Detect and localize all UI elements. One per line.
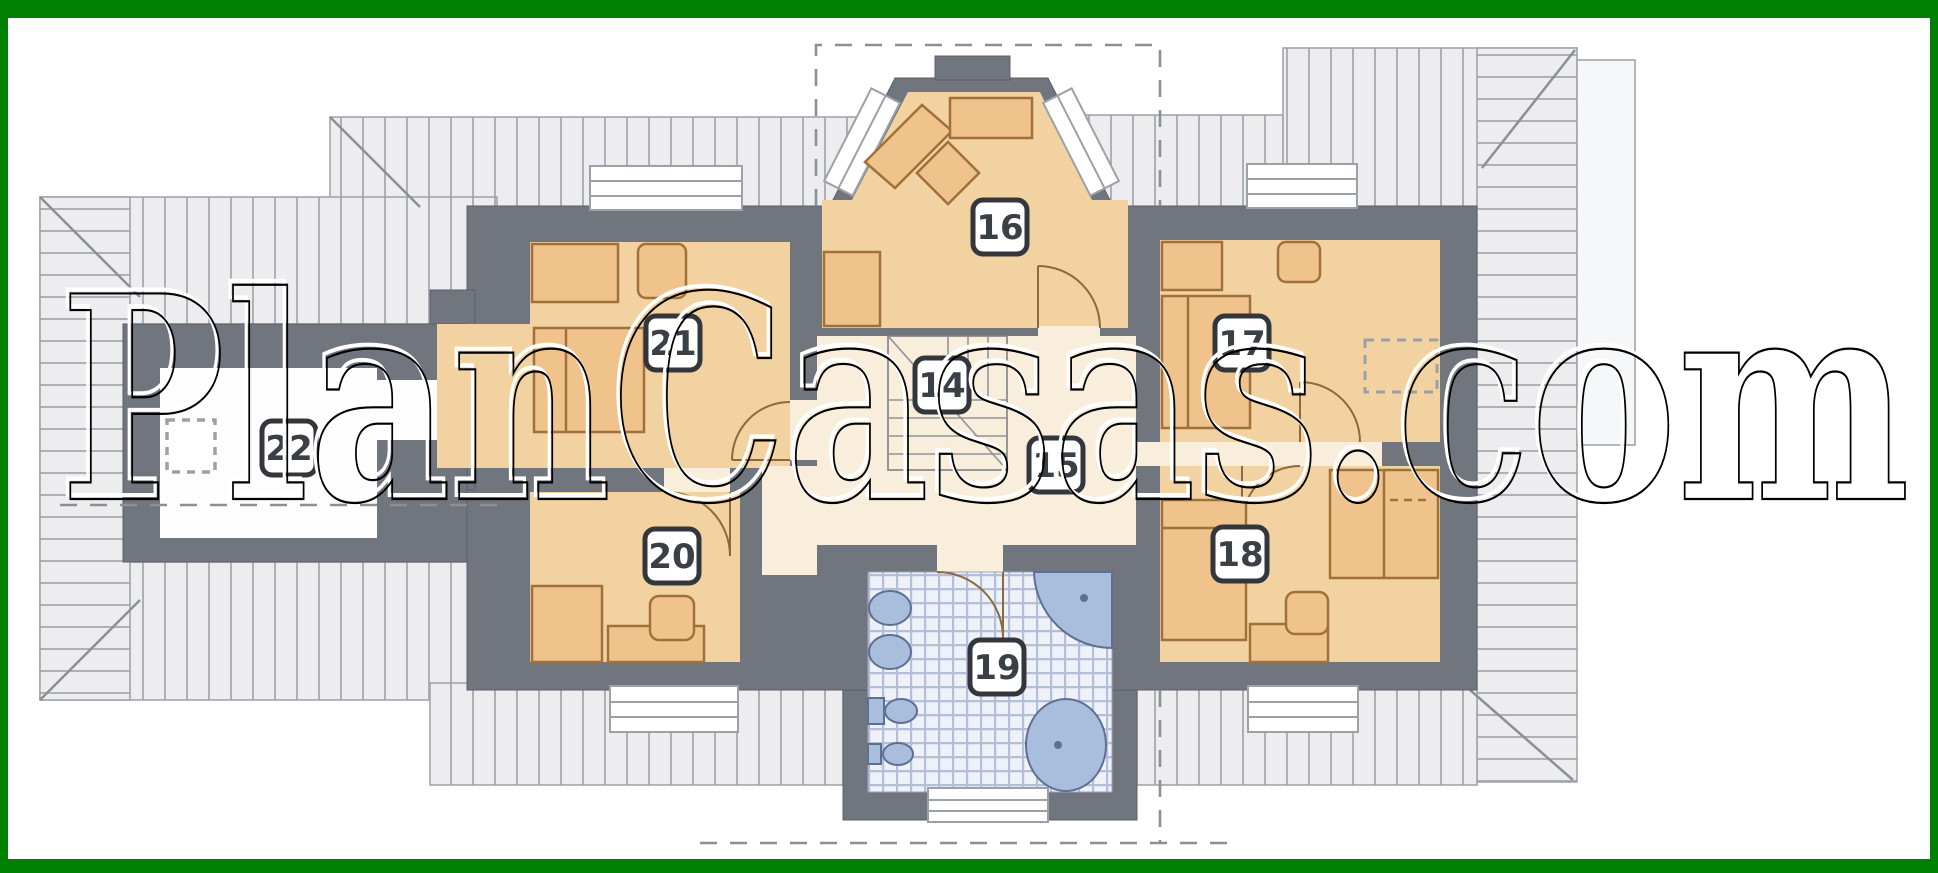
cabinet-room20 bbox=[532, 586, 602, 662]
window-room20 bbox=[610, 686, 738, 732]
bidet-icon bbox=[868, 743, 913, 765]
watermark-text: PlanCasas.com PlanCasas.com bbox=[57, 230, 1910, 566]
toilet-icon bbox=[868, 698, 917, 724]
window-room21 bbox=[590, 166, 742, 210]
window-room19 bbox=[928, 788, 1048, 822]
svg-text:19: 19 bbox=[973, 648, 1020, 688]
bathtub-icon bbox=[1026, 699, 1106, 791]
chair-room18 bbox=[1286, 592, 1328, 634]
sink-icon bbox=[869, 635, 911, 669]
window-room17 bbox=[1247, 164, 1357, 208]
room-badge-19: 19 bbox=[970, 640, 1024, 694]
svg-text:PlanCasas.com: PlanCasas.com bbox=[60, 234, 1910, 566]
sofa-room16-top bbox=[950, 98, 1032, 138]
sink-icon bbox=[869, 591, 911, 625]
window-room18 bbox=[1248, 686, 1358, 732]
floor-plan-image: 14 15 16 17 18 19 20 21 22 PlanCasas.com… bbox=[0, 0, 1938, 873]
chair-room20 bbox=[650, 596, 694, 640]
